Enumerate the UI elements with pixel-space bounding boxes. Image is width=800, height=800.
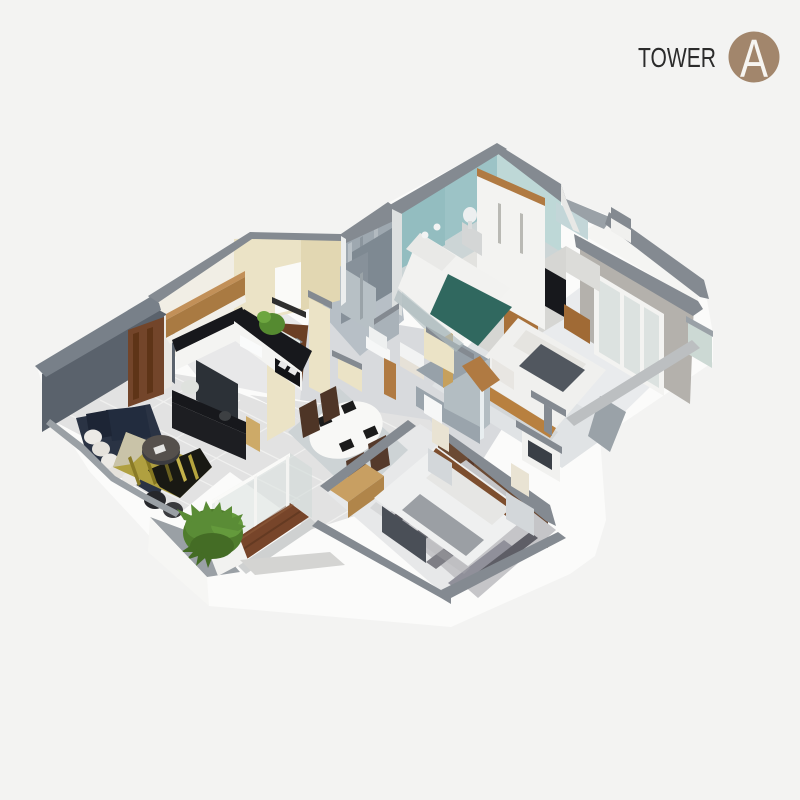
- svg-text:A: A: [740, 29, 768, 89]
- svg-text:TOWER: TOWER: [638, 42, 716, 73]
